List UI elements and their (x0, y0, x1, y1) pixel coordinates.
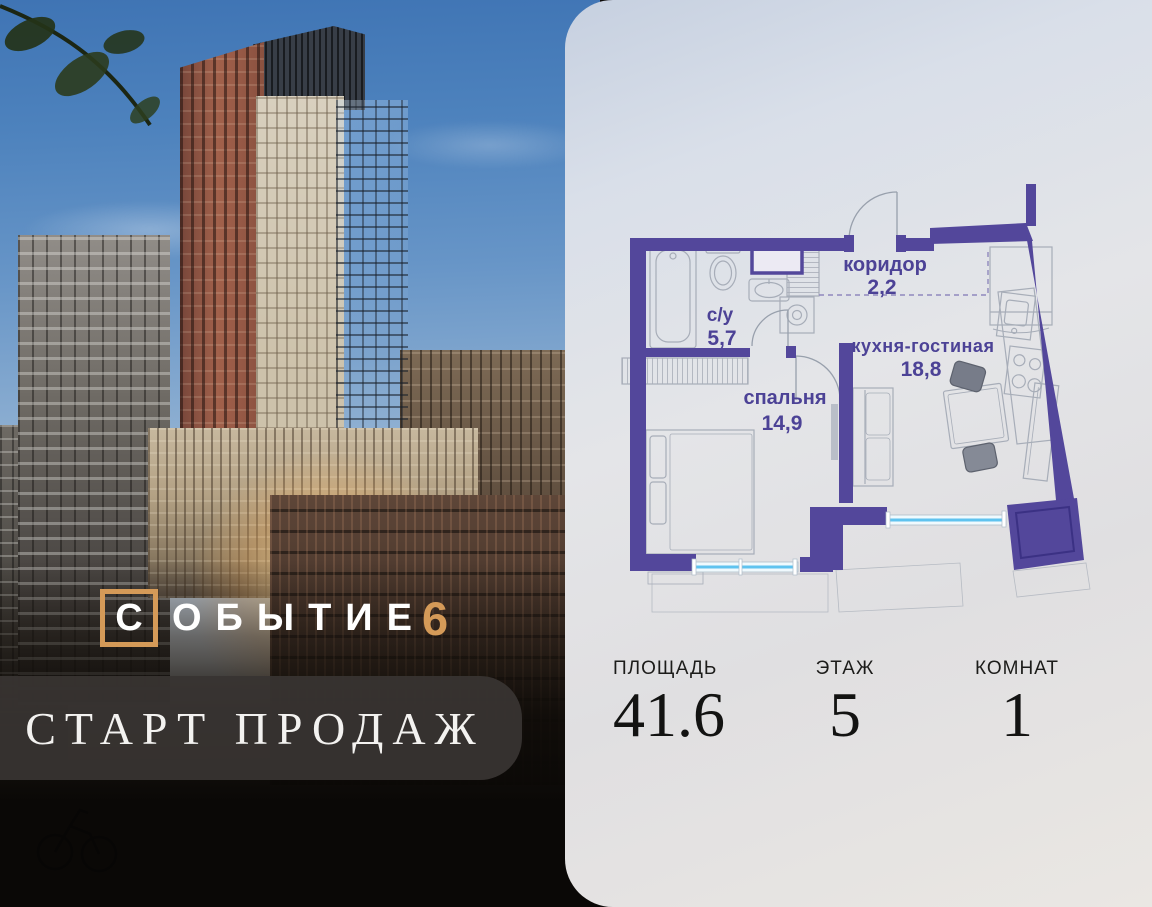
balcony-outline (652, 574, 828, 612)
room-label-bathroom: с/у (707, 305, 734, 326)
stat-floor: ЭТАЖ 5 (775, 658, 915, 747)
building-photo: С ОБЫТИЕ 6 СТАРТ ПРОДАЖ (0, 0, 600, 907)
chair (962, 442, 998, 473)
logo-boxed-letter: С (115, 599, 142, 637)
stat-floor-label: ЭТАЖ (775, 658, 915, 680)
dining-table (943, 383, 1009, 449)
brand-logo: С ОБЫТИЕ 6 (100, 589, 448, 647)
sales-banner-label: СТАРТ ПРОДАЖ (25, 702, 485, 755)
room-area-corridor: 2,2 (867, 276, 896, 299)
stat-area: ПЛОЩАДЬ 41.6 (613, 658, 725, 747)
stat-rooms-value: 1 (947, 682, 1087, 747)
chair (949, 360, 987, 393)
logo-number: 6 (422, 595, 448, 642)
logo-letter-box: С (100, 589, 158, 647)
room-area-bedroom: 14,9 (762, 412, 803, 435)
balcony-outline (836, 563, 963, 612)
stat-rooms: КОМНАТ 1 (947, 658, 1087, 747)
bed (646, 430, 754, 554)
kitchen-sink (996, 292, 1035, 340)
logo-wordmark: ОБЫТИЕ (172, 599, 426, 637)
info-panel: с/у 5,7 коридор 2,2 кухня-гостиная 18,8 … (565, 0, 1152, 907)
floor-plan: с/у 5,7 коридор 2,2 кухня-гостиная 18,8 … (600, 180, 1092, 618)
room-label-kitchen-living: кухня-гостиная (852, 336, 995, 356)
sofa (853, 388, 893, 486)
stat-rooms-label: КОМНАТ (947, 658, 1087, 680)
room-area-bathroom: 5,7 (707, 327, 736, 350)
stat-area-value: 41.6 (613, 682, 725, 747)
room-label-bedroom: спальня (743, 387, 826, 409)
bathtub (650, 244, 696, 348)
washing-machine (780, 297, 814, 333)
sales-banner: СТАРТ ПРОДАЖ (0, 676, 522, 780)
stats-row: ПЛОЩАДЬ 41.6 ЭТАЖ 5 КОМНАТ 1 (565, 658, 1152, 778)
room-area-kitchen-living: 18,8 (901, 358, 942, 381)
promo-card: С ОБЫТИЕ 6 СТАРТ ПРОДАЖ (0, 0, 1152, 907)
stat-area-label: ПЛОЩАДЬ (613, 658, 725, 680)
room-label-corridor: коридор (843, 254, 927, 276)
stat-floor-value: 5 (775, 682, 915, 747)
tv-unit (831, 404, 838, 460)
